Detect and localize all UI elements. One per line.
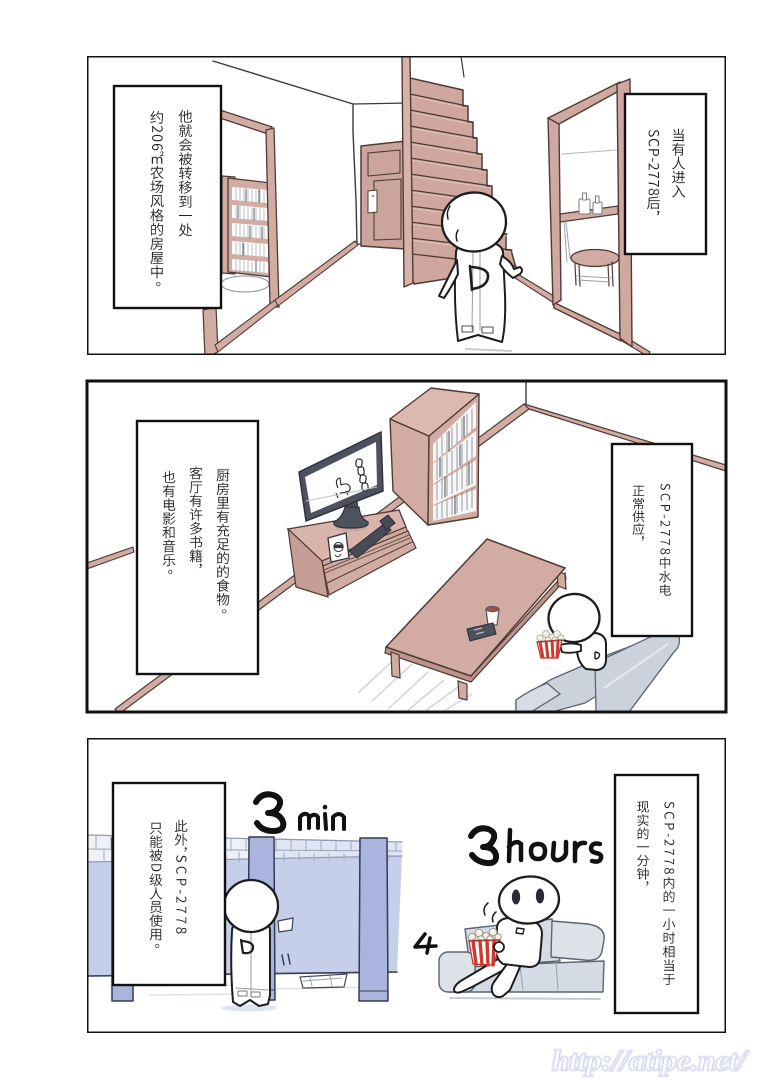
svg-text:http://atipe.net/: http://atipe.net/ xyxy=(552,1046,748,1077)
